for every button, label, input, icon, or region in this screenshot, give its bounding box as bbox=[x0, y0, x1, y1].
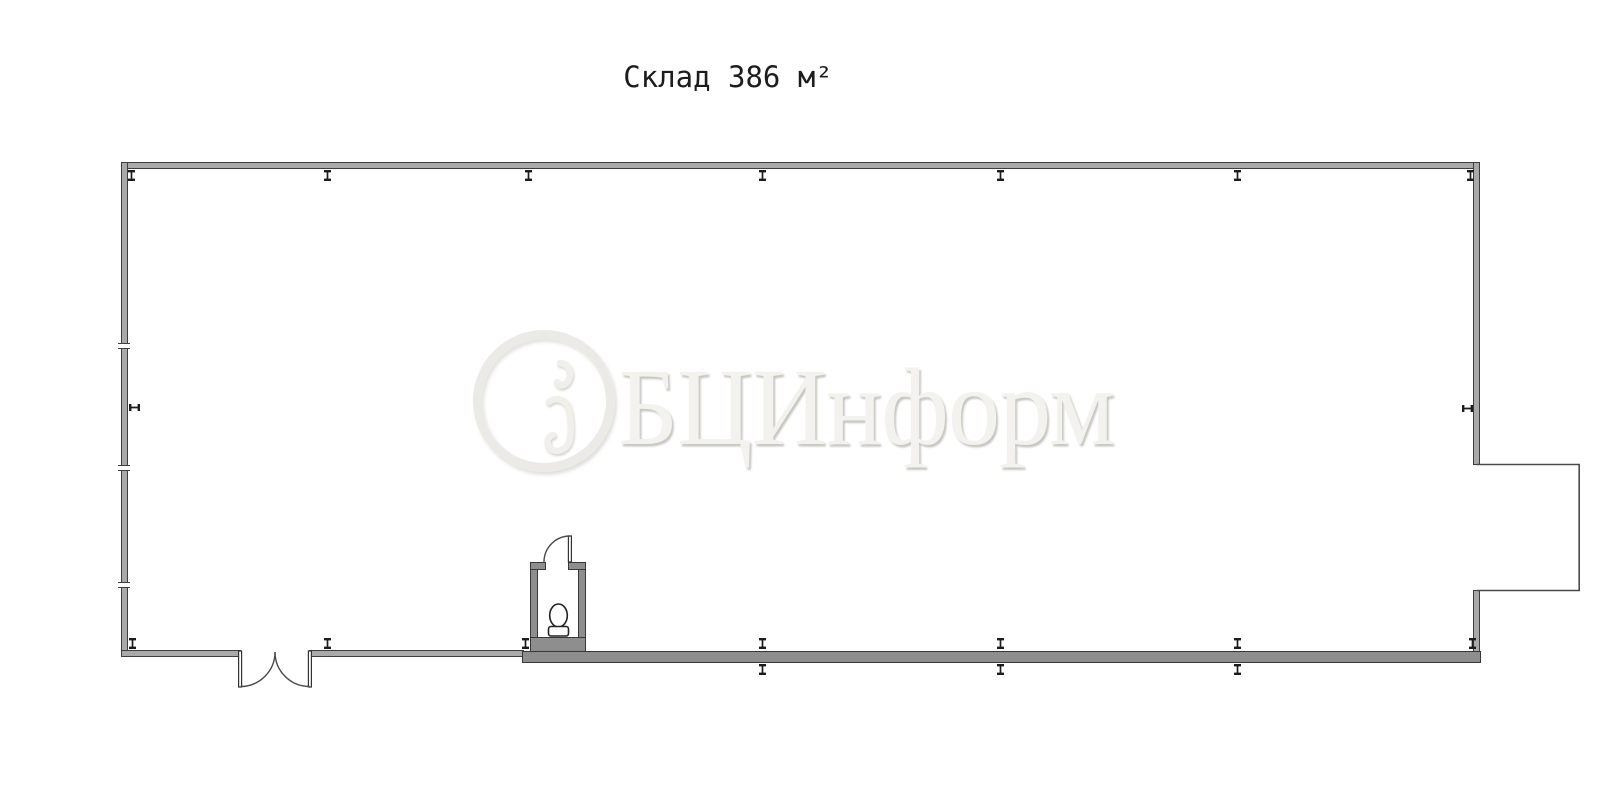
wall-panel-joint bbox=[118, 582, 130, 588]
column-marker bbox=[1232, 637, 1243, 650]
column-marker bbox=[1467, 637, 1478, 650]
wall-panel-joint bbox=[118, 343, 130, 349]
column-marker bbox=[1461, 403, 1474, 414]
column-marker bbox=[127, 637, 138, 650]
column-marker bbox=[523, 169, 534, 182]
floor-plan-page: Склад 386 м² БЦИнформ bbox=[0, 0, 1600, 800]
door-swing-arc-left bbox=[241, 652, 276, 687]
toilet-icon bbox=[549, 604, 569, 636]
wc-door-swing-arc bbox=[544, 536, 570, 562]
entrance-double-door bbox=[239, 651, 312, 687]
column-marker bbox=[995, 637, 1006, 650]
column-marker bbox=[520, 637, 531, 650]
column-marker bbox=[757, 637, 768, 650]
column-marker bbox=[995, 663, 1006, 676]
wc-door bbox=[544, 536, 571, 562]
column-marker bbox=[322, 637, 333, 650]
column-marker bbox=[126, 169, 137, 182]
column-marker bbox=[757, 169, 768, 182]
column-marker bbox=[1232, 169, 1243, 182]
column-marker bbox=[128, 402, 141, 413]
door-swing-arc-right bbox=[275, 652, 310, 687]
column-marker bbox=[1232, 663, 1243, 676]
column-marker bbox=[757, 663, 768, 676]
column-marker bbox=[322, 169, 333, 182]
column-marker bbox=[1465, 169, 1476, 182]
column-marker bbox=[995, 169, 1006, 182]
wall-panel-joint bbox=[118, 465, 130, 471]
plan-linework bbox=[0, 0, 1600, 800]
alcove-outline bbox=[1477, 465, 1579, 591]
